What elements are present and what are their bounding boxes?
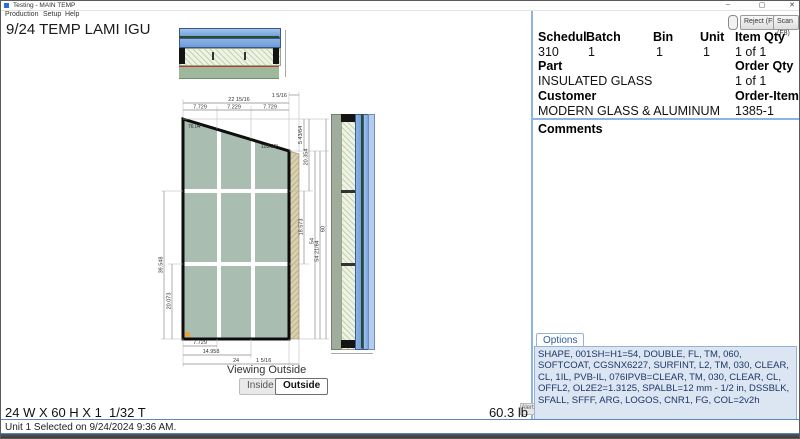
dim-label-top-seg2: 7.229 [227, 105, 241, 111]
value-part: INSULATED GLASS [538, 74, 652, 88]
spacer-block-bottom [341, 340, 355, 348]
dim-label-left-bottom: 20.073 [167, 293, 173, 310]
muntin-mark [341, 263, 355, 266]
close-button[interactable]: ✕ [785, 1, 799, 9]
header-order-qty: Order Qty [735, 59, 793, 73]
dim-label-right-drop: 5 43/64 [298, 126, 304, 144]
dim-label-top-total: 22 15/16 [228, 97, 249, 103]
title-bar: Testing - MAIN TEMP – ▢ ✕ [1, 1, 799, 11]
muntin-mark [341, 190, 355, 193]
window-title: Testing - MAIN TEMP [13, 2, 75, 9]
minimize-button[interactable]: – [721, 1, 735, 8]
value-schedule: 310 [538, 45, 559, 59]
header-bin: Bin [653, 30, 673, 44]
dim-label-top-seg3: 7.729 [263, 105, 277, 111]
tab-options[interactable]: Options [536, 333, 584, 347]
pin-icon[interactable] [728, 15, 738, 30]
glass-pane-laminated [179, 38, 281, 48]
horizontal-cross-section [179, 28, 279, 77]
corner-mark [185, 332, 190, 337]
section-dim-tick [285, 30, 286, 77]
header-unit: Unit [700, 30, 724, 44]
comments-divider [533, 118, 799, 120]
menu-bar [1, 11, 529, 21]
dim-label-overall-height: 60 [321, 226, 327, 232]
menu-setup[interactable]: Setup [43, 11, 61, 18]
application-window: Testing - MAIN TEMP – ▢ ✕ Production Set… [0, 0, 800, 439]
muntin-mark [244, 52, 246, 60]
status-message: Unit 1 Selected on 9/24/2024 9:36 AM. [5, 422, 176, 433]
dim-label-top-seg1: 7.729 [193, 105, 207, 111]
header-batch: Batch [586, 30, 621, 44]
value-batch: 1 [588, 45, 595, 59]
spacer-block-top [341, 114, 355, 122]
muntin-mark [212, 52, 214, 60]
dim-label-top-strip: 1 5/16 [272, 93, 287, 99]
menu-production[interactable]: Production [5, 11, 38, 18]
menu-help[interactable]: Help [65, 11, 79, 18]
airspace-hatch [179, 48, 281, 66]
vertical-cross-section [331, 114, 373, 348]
unit-weight-text: 60.3 lb [401, 405, 528, 420]
glass-surface-strip [368, 114, 375, 350]
outside-button[interactable]: Outside [275, 378, 328, 395]
bottom-strip [1, 434, 800, 439]
glass-unit-body [183, 119, 289, 339]
section-dim-tick [331, 353, 373, 354]
dim-label-right-sec1: 20.354 [304, 149, 310, 166]
value-item-qty: 1 of 1 [735, 45, 766, 59]
app-icon [4, 3, 9, 8]
comments-label: Comments [538, 122, 603, 136]
glass-pane-inner [179, 66, 279, 79]
dim-label-right-edge-height: 54 21/64 [315, 240, 321, 261]
options-text: SHAPE, 001SH=H1=54, DOUBLE, FL, TM, 060,… [535, 347, 796, 408]
header-item-qty: Item Qty [735, 30, 785, 44]
header-customer: Customer [538, 89, 596, 103]
header-part: Part [538, 59, 562, 73]
angle-label-top-right: 103.96° [261, 144, 278, 150]
unit-size-text: 24 W X 60 H X 1 1/32 T [5, 405, 146, 420]
dim-label-left-span: 39.548 [159, 257, 165, 274]
dim-label-right-sec2: 18.573 [299, 219, 305, 236]
page-title: 9/24 TEMP LAMI IGU [6, 21, 151, 38]
header-schedule: Schedul [538, 30, 587, 44]
viewing-label: Viewing Outside [227, 364, 306, 376]
value-order-item: 1385-1 [735, 104, 774, 118]
panel-divider [531, 11, 533, 420]
value-unit: 1 [703, 45, 710, 59]
spacer-block-left [179, 48, 185, 64]
value-order-qty: 1 of 1 [735, 74, 766, 88]
dim-label-bottom-seg: 7.729 [193, 340, 207, 346]
value-bin: 1 [656, 45, 663, 59]
header-order-item: Order-Item [735, 89, 799, 103]
value-customer: MODERN GLASS & ALUMINUM [538, 104, 720, 118]
maximize-button[interactable]: ▢ [755, 1, 769, 9]
scan-button[interactable]: Scan (F8) [773, 15, 799, 30]
angle-label-top-left: 76.04° [188, 124, 203, 130]
spacer-block-right [273, 48, 279, 64]
dim-label-bottom-mid: 14.958 [203, 349, 220, 355]
